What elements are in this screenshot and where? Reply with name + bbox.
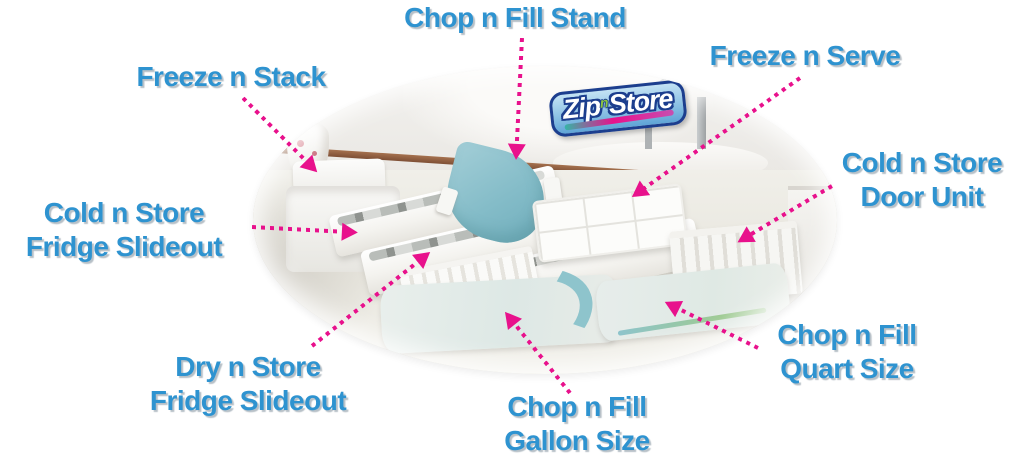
arrow-dotted-line (252, 225, 343, 234)
label-chop-n-fill-quart-size: Chop n Fill Quart Size (742, 318, 952, 386)
arrowhead (507, 143, 526, 160)
label-chop-n-fill-gallon-size: Chop n Fill Gallon Size (467, 390, 687, 458)
label-cold-n-store-door-unit: Cold n Store Door Unit (817, 146, 1024, 214)
label-freeze-n-serve: Freeze n Serve (675, 39, 935, 73)
label-freeze-n-stack: Freeze n Stack (101, 60, 361, 94)
arrowhead (341, 223, 358, 242)
label-chop-n-fill-stand: Chop n Fill Stand (355, 1, 675, 35)
chop-n-fill-gallon-mat (379, 274, 620, 354)
label-dry-n-store-fridge-slideout: Dry n Store Fridge Slideout (128, 350, 368, 418)
arrow-dotted-line (515, 38, 524, 145)
annotated-product-diagram: ZipnStore Chop n Fill Stand (0, 0, 1024, 458)
label-cold-n-store-fridge-slideout: Cold n Store Fridge Slideout (0, 196, 248, 264)
